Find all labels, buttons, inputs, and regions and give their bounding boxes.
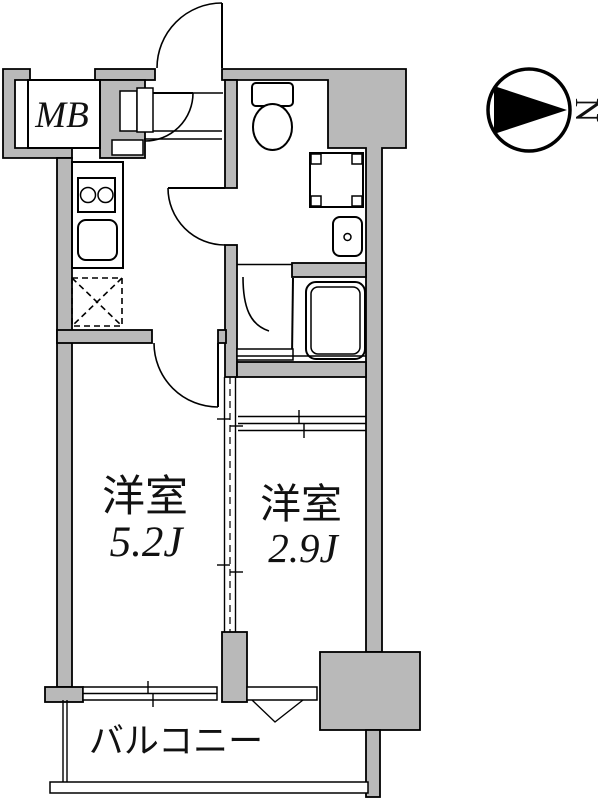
- room2-name-label: 洋室: [260, 481, 342, 527]
- floor-plan-page: N MB 洋室 5.2J 洋室 2.9J バルコニー: [0, 0, 606, 800]
- wall-bottom-right-block: [320, 652, 420, 730]
- entrance-door-swing-arc: [157, 3, 222, 68]
- wall-partition-south-block: [222, 632, 247, 702]
- floor-plan: N MB 洋室 5.2J 洋室 2.9J バルコニー: [0, 0, 606, 800]
- meter-box-label: MB: [34, 95, 88, 136]
- room1-door-swing-arc: [154, 343, 218, 407]
- room1-size-label: 5.2J: [110, 519, 185, 566]
- toilet-tank: [252, 83, 293, 106]
- wall-washroom-south-east: [292, 263, 366, 277]
- bathroom-door-frame: [292, 278, 293, 356]
- toilet-bowl: [253, 104, 292, 150]
- wall-bathroom-south: [237, 362, 366, 377]
- balcony-rail-bottom: [50, 782, 368, 793]
- wall-kitchen-west: [57, 158, 72, 687]
- bathroom-door-fold-leaf: [243, 277, 269, 331]
- small-window-room2: [247, 687, 317, 700]
- wall-washroom-west-upper: [225, 80, 237, 188]
- washing-machine-pan: [310, 153, 363, 207]
- compass-north-label: N: [568, 98, 605, 123]
- entry-counter: [112, 140, 143, 155]
- wall-stub-room1-door: [218, 330, 226, 343]
- room1-name-label: 洋室: [102, 473, 188, 521]
- shoe-cabinet-left: [120, 91, 137, 131]
- north-compass: N: [488, 69, 605, 151]
- stove-2-burner: [78, 178, 115, 212]
- wall-bottom-left-cap: [45, 687, 83, 702]
- bathtub-outer: [306, 282, 365, 359]
- room2-size-label: 2.9J: [268, 525, 339, 571]
- balcony-label: バルコニー: [89, 722, 263, 761]
- wall-washroom-west-lower: [225, 245, 237, 377]
- kitchen-sink: [78, 220, 117, 260]
- wall-top-mid: [95, 69, 155, 80]
- washroom-door-swing-arc: [168, 188, 225, 245]
- small-window-swing-mark: [252, 700, 303, 722]
- wall-kitchen-room1: [57, 330, 152, 343]
- bathroom-threshold: [237, 349, 293, 360]
- wash-basin: [333, 217, 362, 256]
- shoe-cabinet-right: [137, 88, 153, 132]
